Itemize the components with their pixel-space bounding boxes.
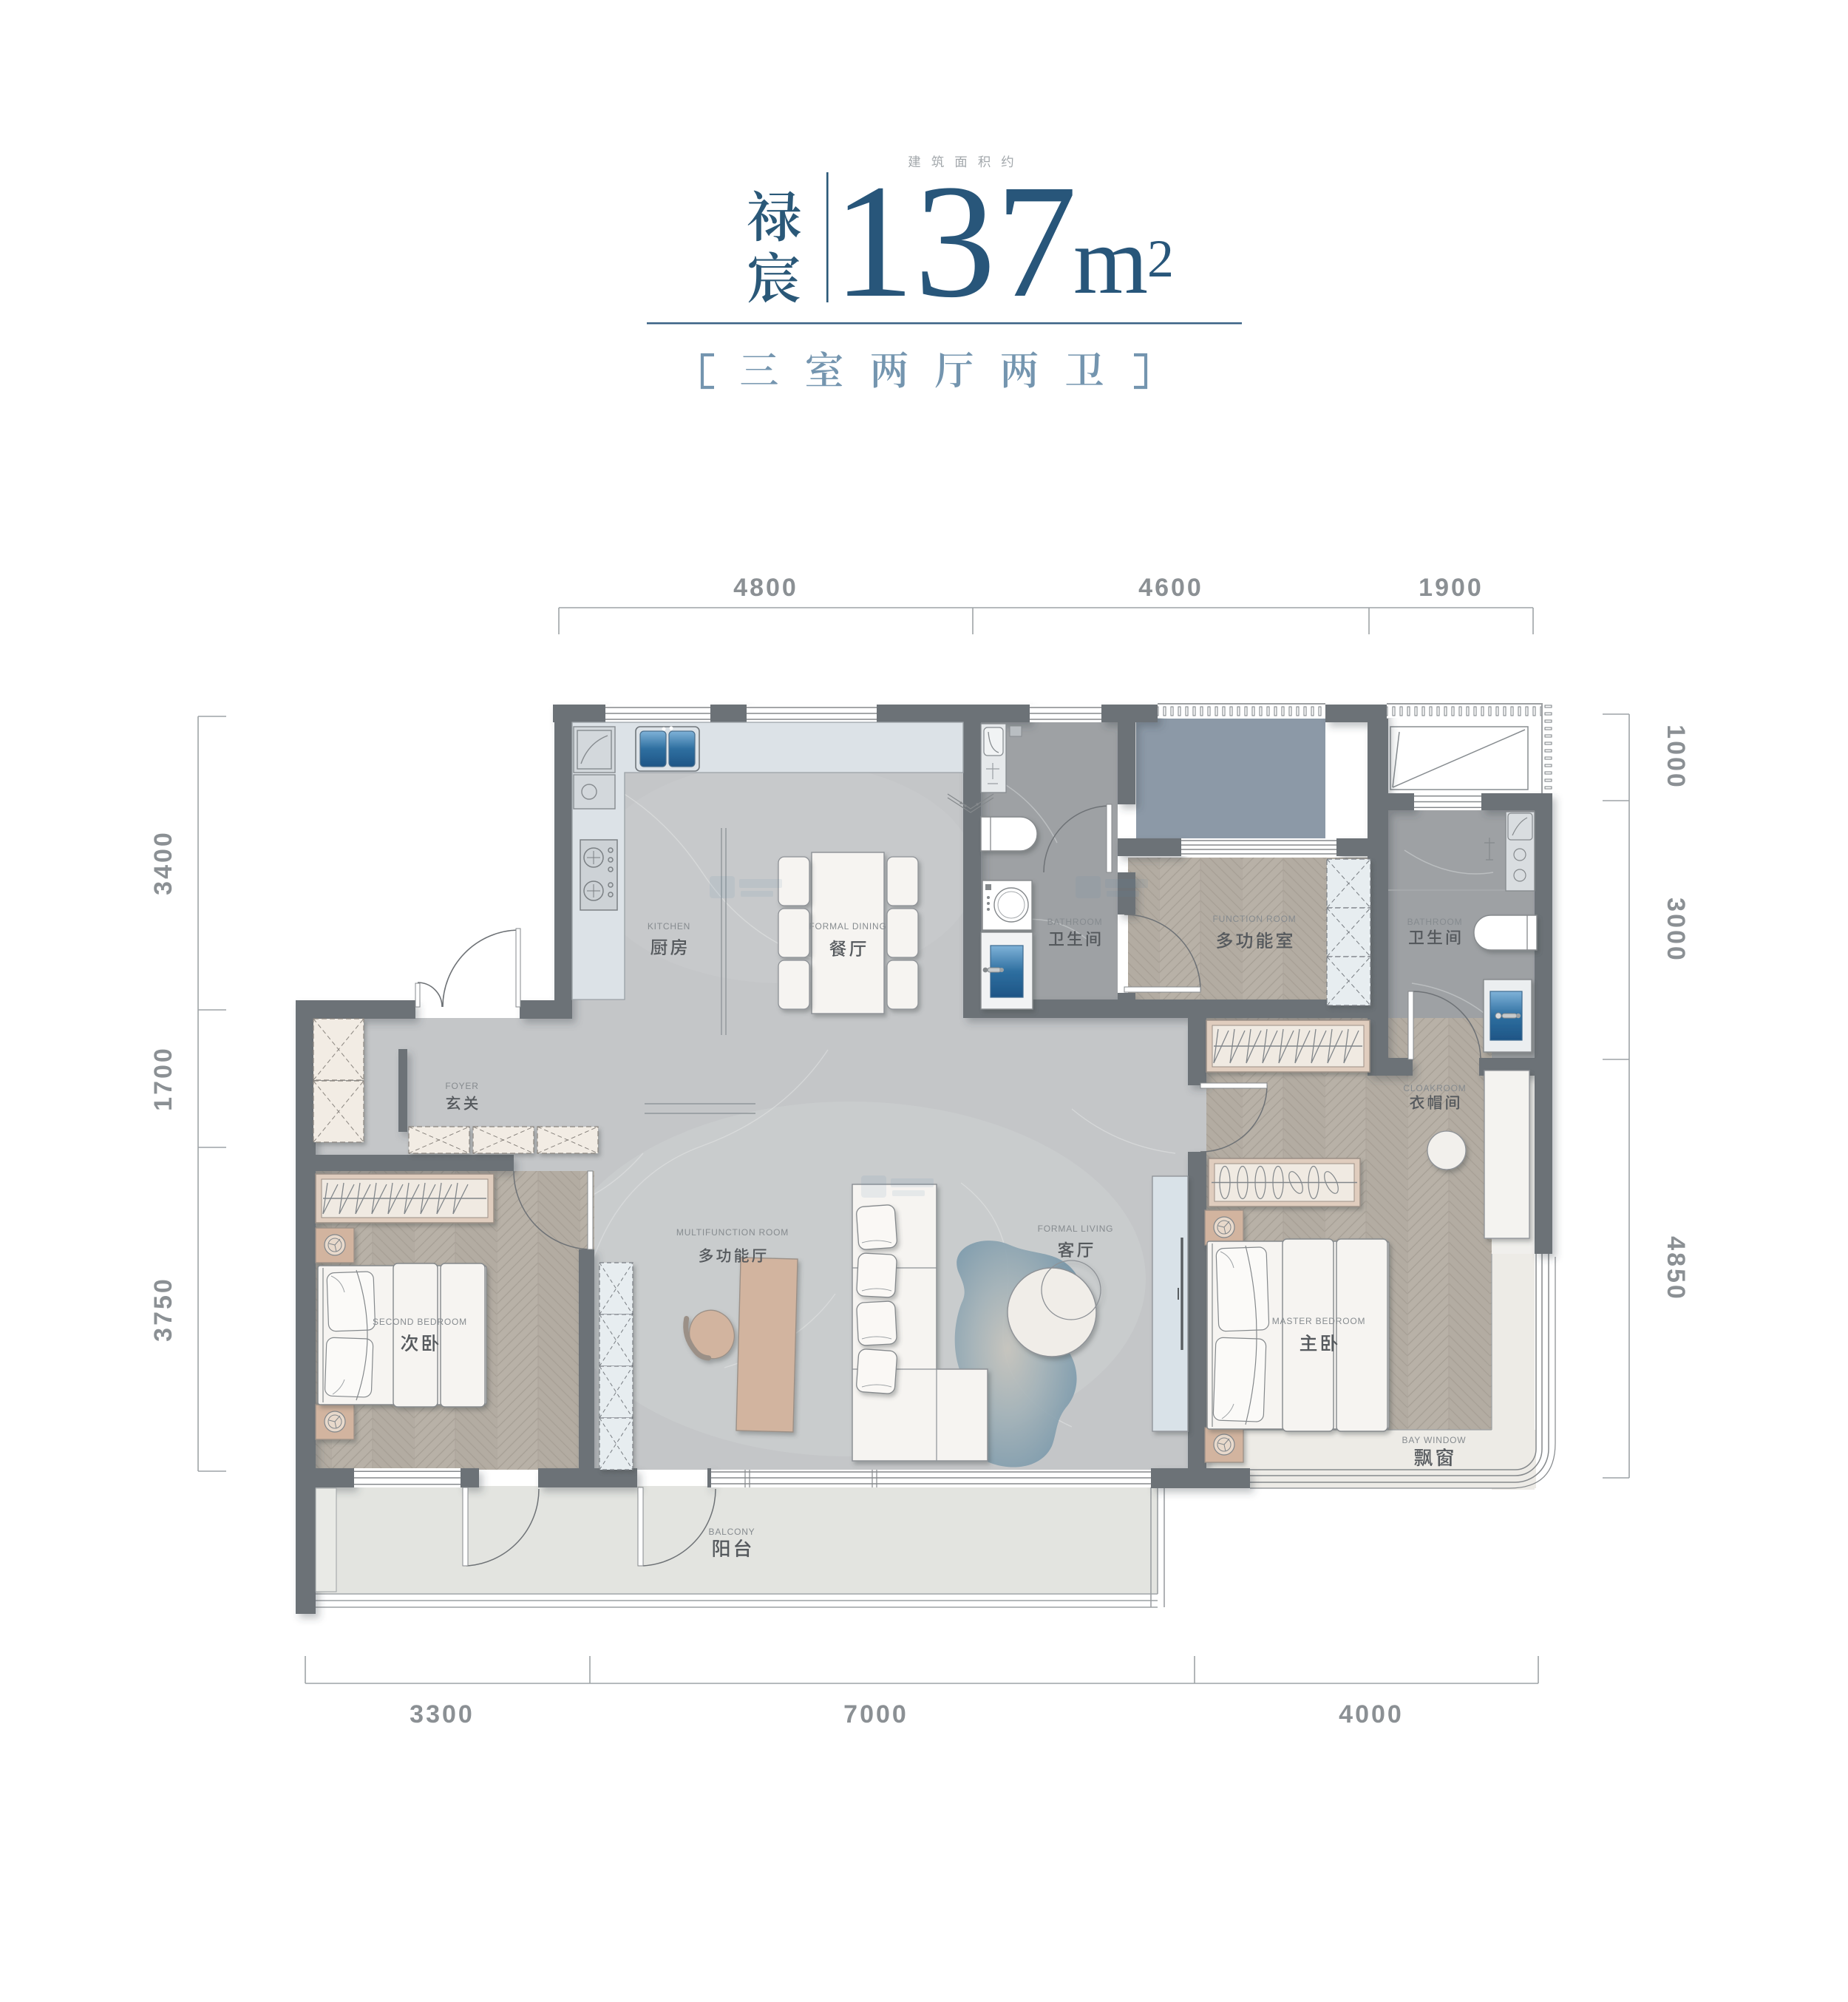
svg-text:BATHROOM: BATHROOM bbox=[1407, 917, 1463, 927]
svg-text:3750: 3750 bbox=[149, 1277, 177, 1342]
svg-text:1000: 1000 bbox=[1662, 725, 1690, 790]
svg-text:4850: 4850 bbox=[1662, 1236, 1690, 1301]
svg-text:FORMAL DINING: FORMAL DINING bbox=[809, 921, 886, 932]
svg-text:KITCHEN: KITCHEN bbox=[648, 921, 690, 932]
svg-text:1900: 1900 bbox=[1419, 574, 1484, 602]
svg-text:BATHROOM: BATHROOM bbox=[1047, 917, 1103, 927]
svg-text:MULTIFUNCTION ROOM: MULTIFUNCTION ROOM bbox=[676, 1227, 789, 1238]
svg-text:FUNCTION ROOM: FUNCTION ROOM bbox=[1212, 914, 1296, 924]
svg-text:2: 2 bbox=[1147, 229, 1174, 288]
svg-text:MASTER BEDROOM: MASTER BEDROOM bbox=[1272, 1316, 1366, 1326]
svg-text:m: m bbox=[1073, 208, 1148, 314]
svg-text:1700: 1700 bbox=[149, 1046, 177, 1111]
svg-text:3300: 3300 bbox=[410, 1700, 475, 1728]
svg-text:BAY WINDOW: BAY WINDOW bbox=[1402, 1435, 1467, 1445]
svg-text:3000: 3000 bbox=[1662, 897, 1690, 963]
svg-text:FOYER: FOYER bbox=[445, 1081, 478, 1091]
svg-text:137: 137 bbox=[833, 151, 1077, 331]
svg-text:FORMAL LIVING: FORMAL LIVING bbox=[1038, 1224, 1114, 1234]
svg-text:7000: 7000 bbox=[843, 1700, 908, 1728]
svg-text:SECOND BEDROOM: SECOND BEDROOM bbox=[373, 1317, 467, 1327]
svg-text:4800: 4800 bbox=[733, 574, 798, 602]
svg-text:3400: 3400 bbox=[149, 830, 177, 895]
svg-text:4600: 4600 bbox=[1138, 574, 1203, 602]
svg-text:CLOAKROOM: CLOAKROOM bbox=[1403, 1083, 1466, 1093]
svg-text:4000: 4000 bbox=[1339, 1700, 1404, 1728]
svg-text:BALCONY: BALCONY bbox=[709, 1527, 755, 1537]
